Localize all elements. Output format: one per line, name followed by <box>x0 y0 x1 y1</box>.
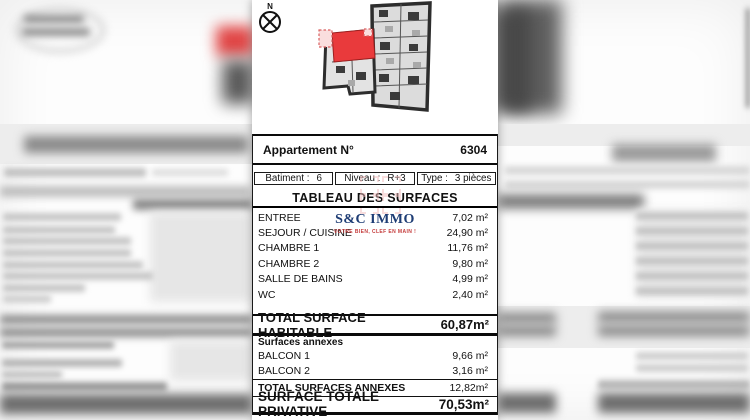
type-cell: Type : 3 pièces <box>417 172 496 185</box>
balcony-dashed-outline <box>319 30 332 47</box>
apartment-number: 6304 <box>460 143 487 157</box>
surface-row: SALLE DE BAINS 4,99 m² <box>253 272 497 287</box>
compass-north-label: N <box>267 2 273 11</box>
blur-bar <box>598 312 750 322</box>
blur-bar <box>216 26 254 56</box>
blur-bar <box>3 249 131 257</box>
table-title: TABLEAU DES SURFACES <box>253 191 497 208</box>
surface-area: 9,80 m² <box>452 258 488 270</box>
blur-bar <box>24 15 84 23</box>
balcony-dashed-outline <box>364 29 372 36</box>
surface-name: CHAMBRE 1 <box>258 242 319 254</box>
blur-bar <box>505 166 750 175</box>
blur-bar <box>3 237 131 245</box>
blur-bar <box>498 326 556 336</box>
surface-row: CHAMBRE 1 11,76 m² <box>253 241 497 256</box>
blur-band <box>498 124 750 146</box>
surface-name: SALLE DE BAINS <box>258 273 343 285</box>
info-cells-row: Batiment : 6 Niveau : R+3 Type : 3 pièce… <box>253 167 497 189</box>
blur-bar <box>636 227 748 235</box>
blur-bar <box>0 186 250 197</box>
blur-bar <box>3 284 85 292</box>
type-label: Type : <box>421 173 448 184</box>
blur-bar <box>636 212 748 220</box>
total-privative-area: 70,53m² <box>439 397 489 412</box>
surface-row: CHAMBRE 2 9,80 m² <box>253 256 497 271</box>
apartment-number-row: Appartement N° 6304 <box>253 134 497 165</box>
blur-bar <box>636 210 750 298</box>
annex-area: 9,66 m² <box>452 350 488 362</box>
annex-row: BALCON 1 9,66 m² <box>253 348 497 363</box>
blur-bar <box>636 242 748 250</box>
blur-bar <box>24 136 248 153</box>
blur-bar <box>152 169 228 176</box>
blur-bar <box>133 199 252 210</box>
blur-bar <box>2 359 122 367</box>
total-privative-row: SURFACE TOTALE PRIVATIVE 70,53m² <box>253 396 497 415</box>
batiment-cell: Batiment : 6 <box>254 172 333 185</box>
blur-bar <box>612 144 716 162</box>
surface-row: SEJOUR / CUISINE 24,90 m² <box>253 225 497 240</box>
total-annexes-area: 12,82m² <box>449 382 488 394</box>
blur-bar <box>3 213 121 221</box>
blur-bar <box>3 272 153 280</box>
blur-bar <box>22 28 90 36</box>
total-habitable-area: 60,87m² <box>441 317 489 332</box>
annex-name: BALCON 1 <box>258 350 310 362</box>
total-privative-label: SURFACE TOTALE PRIVATIVE <box>258 389 439 419</box>
floor-plan: N <box>252 0 498 122</box>
blur-bar <box>2 382 167 391</box>
blur-bar <box>498 194 644 209</box>
blur-bar <box>636 272 748 280</box>
total-habitable-label: TOTAL SURFACE HABITABLE <box>258 310 441 340</box>
batiment-label: Batiment : <box>265 173 309 184</box>
blur-bar <box>3 295 51 303</box>
blur-bar <box>636 287 748 295</box>
annex-name: BALCON 2 <box>258 365 310 377</box>
surface-row: WC 2,40 m² <box>253 287 497 302</box>
compass-icon: N <box>260 2 280 32</box>
surface-name: SEJOUR / CUISINE <box>258 227 352 239</box>
blur-bar <box>598 393 750 413</box>
blur-bar <box>3 226 115 234</box>
blur-bar <box>746 8 750 108</box>
blur-bar <box>498 313 556 323</box>
blur-bar <box>498 393 556 413</box>
blur-bar <box>150 212 252 302</box>
surface-name: ENTREE <box>258 212 301 224</box>
blur-bar <box>2 371 62 378</box>
blur-bar <box>636 352 748 360</box>
blur-bar <box>498 10 532 110</box>
document-panel: N <box>252 0 498 420</box>
surface-area: 2,40 m² <box>452 289 488 301</box>
apartment-label: Appartement N° <box>263 143 354 157</box>
niveau-cell: Niveau : R+3 <box>335 172 414 185</box>
surface-area: 24,90 m² <box>447 227 488 239</box>
batiment-value: 6 <box>316 173 321 184</box>
blur-bar <box>636 364 748 372</box>
blur-bar <box>0 394 252 414</box>
blur-bar <box>3 261 143 269</box>
blur-bar <box>170 341 252 381</box>
type-value: 3 pièces <box>455 173 492 184</box>
blur-bar <box>0 328 252 337</box>
surface-area: 11,76 m² <box>447 242 488 254</box>
blur-bar <box>4 168 146 177</box>
total-habitable-row: TOTAL SURFACE HABITABLE 60,87m² <box>253 314 497 336</box>
surface-area: 4,99 m² <box>452 273 488 285</box>
annex-area: 3,16 m² <box>452 365 488 377</box>
surface-name: CHAMBRE 2 <box>258 258 319 270</box>
annex-row: BALCON 2 3,16 m² <box>253 363 497 378</box>
surface-area: 7,02 m² <box>452 212 488 224</box>
page: N <box>0 0 750 420</box>
blur-bar <box>505 180 750 189</box>
blur-bar <box>0 315 252 324</box>
niveau-value: R+3 <box>387 173 405 184</box>
surface-name: WC <box>258 289 276 301</box>
niveau-label: Niveau : <box>344 173 380 184</box>
blur-bar <box>2 341 114 349</box>
surface-row: ENTREE 7,02 m² <box>253 210 497 225</box>
blur-bar <box>598 326 750 336</box>
blur-bar <box>636 257 748 265</box>
blur-bar <box>598 380 750 389</box>
blur-bar <box>222 60 254 104</box>
